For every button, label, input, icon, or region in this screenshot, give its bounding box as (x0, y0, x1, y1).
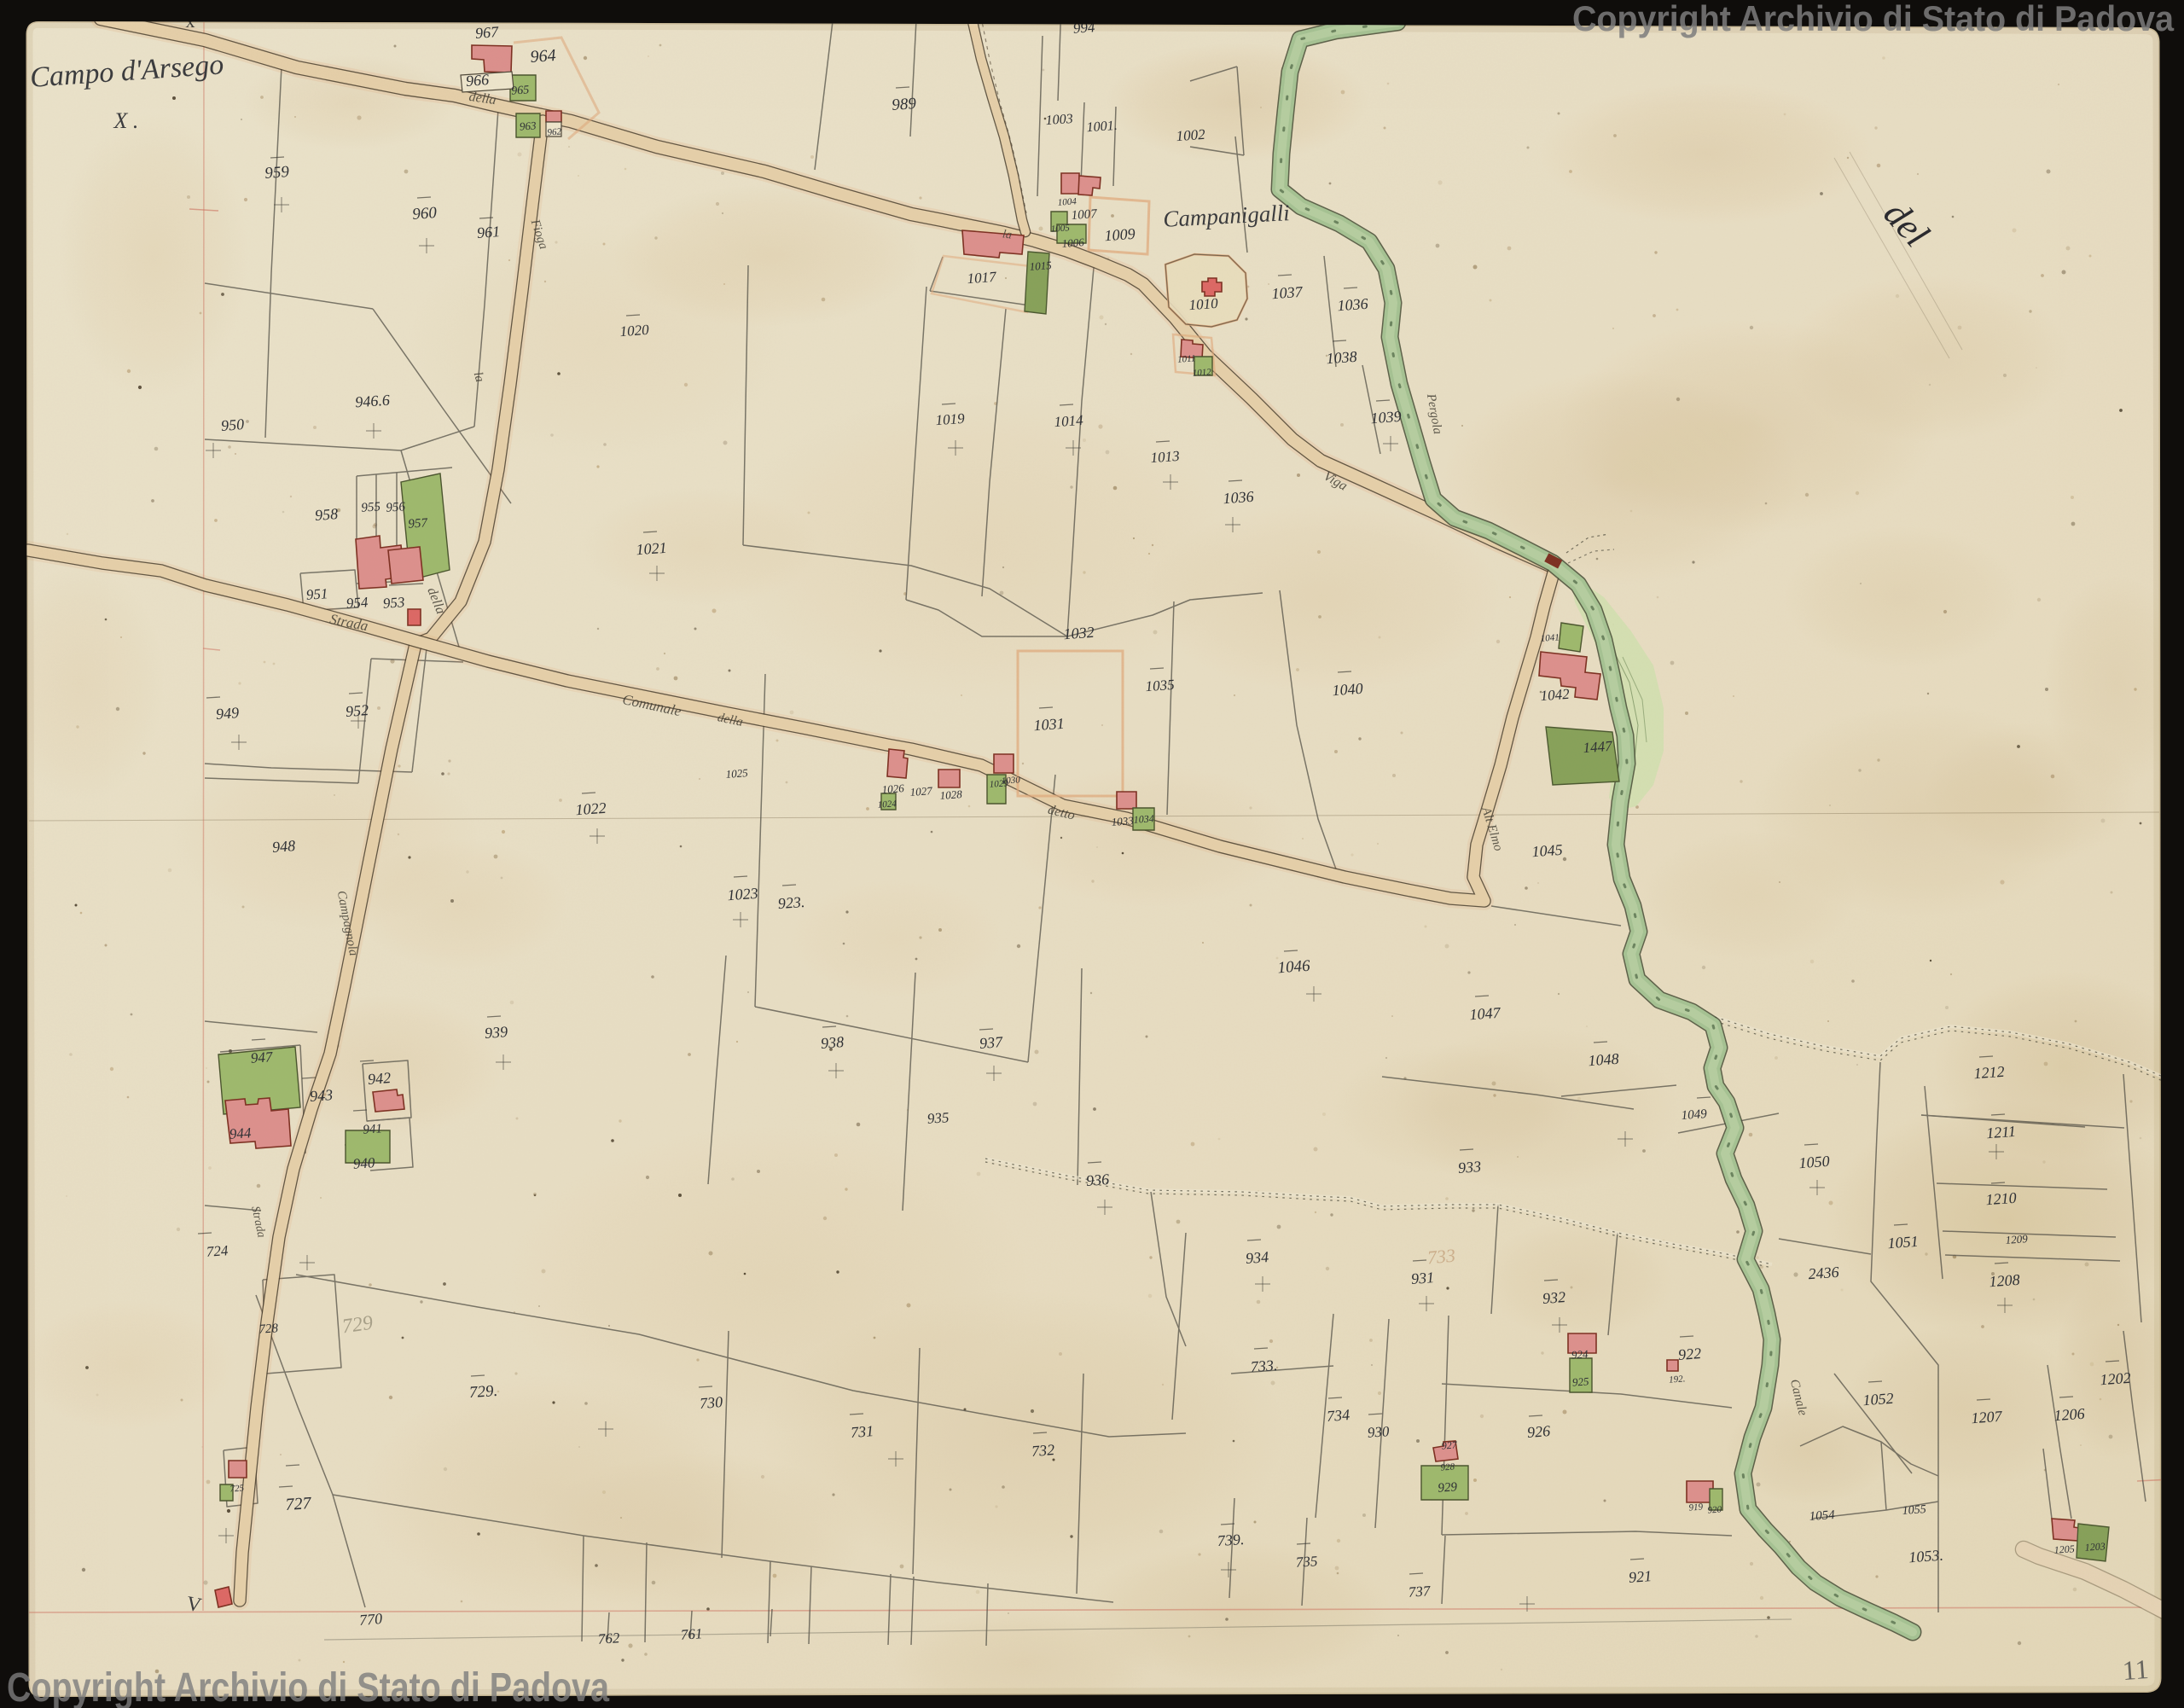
svg-text:Copyright Archivio di Stato di: Copyright Archivio di Stato di Padova (7, 1665, 609, 1708)
svg-text:Copyright Archivio di Stato di: Copyright Archivio di Stato di Padova (1572, 0, 2175, 38)
